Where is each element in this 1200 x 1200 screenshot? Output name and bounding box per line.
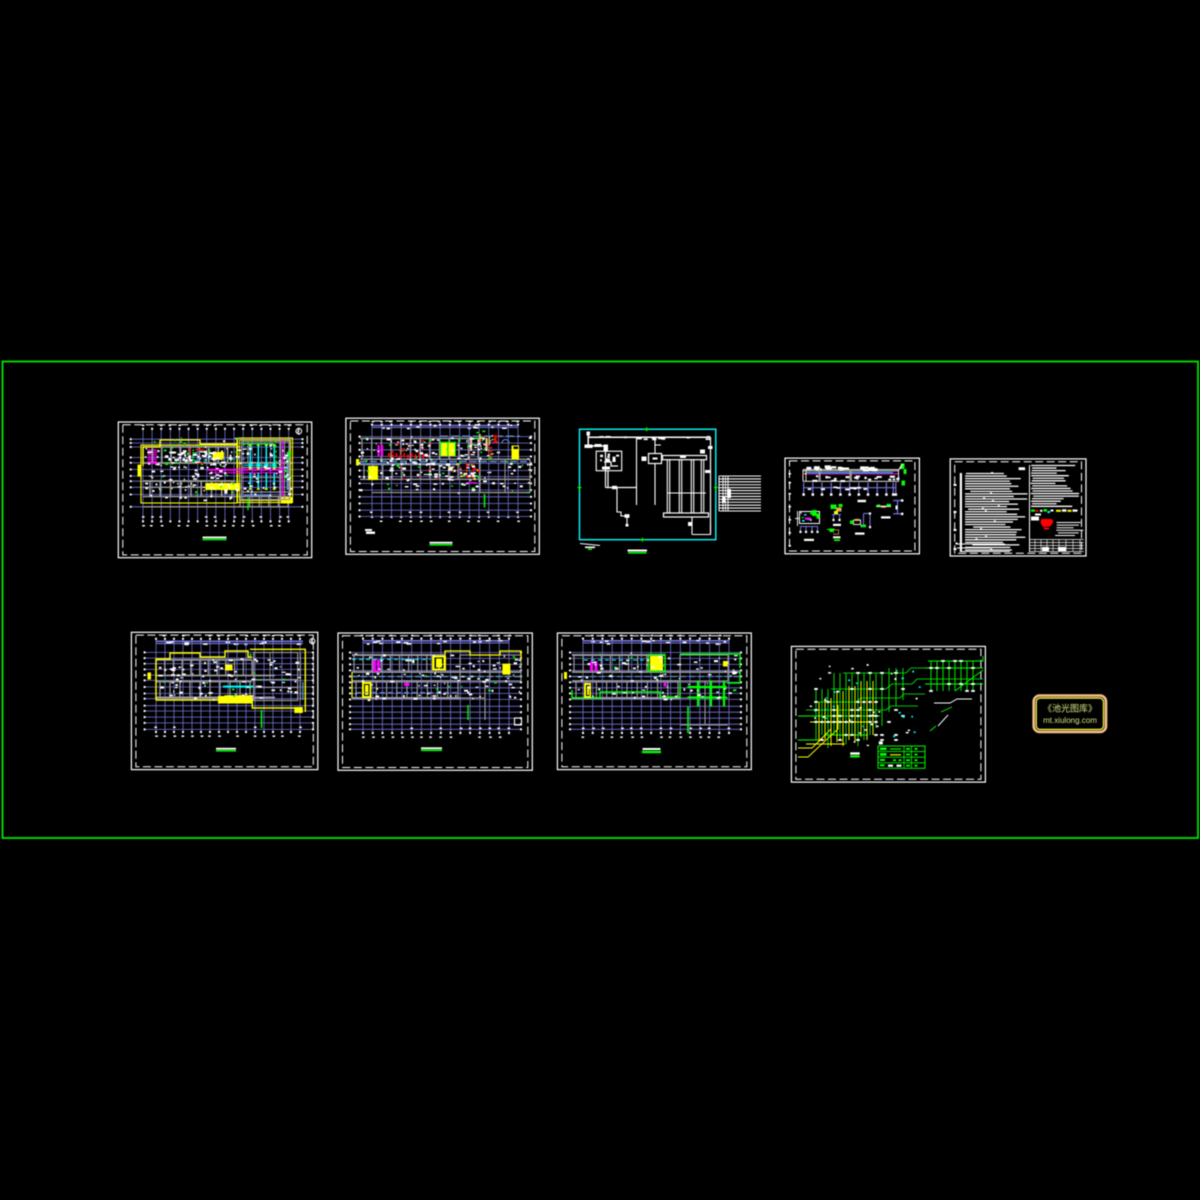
svg-text:《池光图库》: 《池光图库》 [1043,703,1097,714]
svg-text:mt.xiulong.com: mt.xiulong.com [1043,716,1097,725]
